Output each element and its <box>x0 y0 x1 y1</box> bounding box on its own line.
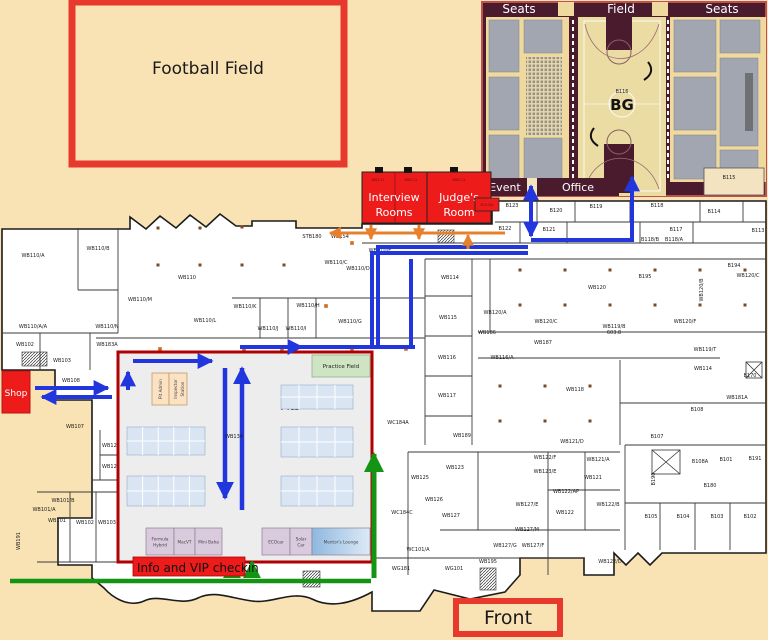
column-dot <box>589 420 592 423</box>
room-label-wb134: WB134 <box>225 434 243 440</box>
room-label: WB122/AP <box>553 489 579 495</box>
front-entrance-zone: Front <box>456 601 560 634</box>
column-dot <box>499 420 502 423</box>
gym-area: B116 BG Seats Field Seats Event Office B… <box>482 2 766 196</box>
room-label: WB101/B <box>51 498 75 504</box>
seat-block-dark <box>745 73 753 131</box>
gym-header-field: Field <box>607 2 635 16</box>
team-zone: ECOcar <box>262 528 290 555</box>
judges-room-zone: WB113 Judge's Room <box>427 172 491 223</box>
room-label: B114 <box>708 209 721 215</box>
column-dot <box>241 264 244 267</box>
room-label: B117 <box>670 227 683 233</box>
gym-corner-room <box>704 168 764 195</box>
column-dot <box>519 304 522 307</box>
table-cluster <box>127 427 205 455</box>
room-label: 603.8 <box>607 330 621 336</box>
column-dot <box>241 226 244 229</box>
room-label: WB107 <box>66 424 84 430</box>
front-label: Front <box>484 607 532 629</box>
seat-block <box>720 20 760 53</box>
room-label: WB110/A <box>21 253 45 259</box>
team-zone: Mini Baha <box>195 528 222 555</box>
inspector-label-2: Station <box>180 381 185 396</box>
gym-logo: BG <box>610 96 634 114</box>
gym-header-seats-right: Seats <box>705 2 738 16</box>
room-label: WB195 <box>479 559 497 565</box>
pits-area: Practice Field Pit Admin Inspector Stati… <box>118 352 372 562</box>
table-cluster <box>281 385 353 409</box>
room-label: WG181 <box>392 566 410 572</box>
seat-block <box>524 138 562 179</box>
room-label: WB110/I <box>285 326 306 332</box>
gym-header-seats-left: Seats <box>502 2 535 16</box>
judges-room-number: WB113 <box>453 178 466 182</box>
table-cluster <box>281 427 353 457</box>
b123a-label: B123/A <box>481 203 495 207</box>
team-zone-label: MacVT <box>178 540 192 545</box>
room-label: B115 <box>723 175 736 181</box>
practice-field-label: Practice Field <box>323 364 359 370</box>
room-label: WB123 <box>446 465 464 471</box>
room-label: WB110/N <box>95 324 119 330</box>
room-label: B191 <box>749 456 762 462</box>
team-zone-label: Mini Baha <box>198 540 219 545</box>
room-label: WB110/B <box>86 246 110 252</box>
room-label: WB191 <box>16 532 22 550</box>
gym-aisle-gap <box>652 2 668 16</box>
team-zone-label: Car <box>297 543 304 548</box>
room-label: WB121/D <box>560 439 584 445</box>
column-dot <box>744 269 747 272</box>
room-label: WG101 <box>445 566 463 572</box>
room-label: WB183A <box>96 342 118 348</box>
event-label: Event <box>489 181 521 194</box>
room-label: B107 <box>651 434 664 440</box>
room-label: WB189 <box>453 433 471 439</box>
room-label: B123 <box>506 203 519 209</box>
room-label: WB126 <box>425 497 443 503</box>
room-label: WB110/K <box>234 304 258 310</box>
room-label: WB122 <box>556 510 574 516</box>
room-label: WB103 <box>98 520 116 526</box>
room-label: WC184A <box>387 420 409 426</box>
room-label: WB127/M <box>515 527 539 533</box>
room-label: WB127/G <box>493 543 517 549</box>
column-dot <box>654 304 657 307</box>
shop-zone: Shop <box>2 371 30 413</box>
table-cluster <box>127 476 205 506</box>
room-label: WB181A <box>726 395 748 401</box>
room-label: WB154 <box>331 234 349 240</box>
football-field-label: Football Field <box>152 59 264 79</box>
team-zone-label: Mentor's Lounge <box>324 540 359 545</box>
team-zone: MacVT <box>174 528 195 555</box>
room-label: B190 <box>651 473 657 486</box>
seat-block <box>489 20 519 72</box>
room-label: WB123/E <box>534 469 557 475</box>
column-dot <box>744 304 747 307</box>
room-label: WB110/D <box>346 266 370 272</box>
room-label: B120 <box>550 208 563 214</box>
room-label: B121 <box>543 227 556 233</box>
orange-marker-dot <box>324 304 328 308</box>
room-label: B180 <box>704 483 717 489</box>
room-label: B108 <box>691 407 704 413</box>
room-label: B195 <box>639 274 652 280</box>
column-dot <box>589 385 592 388</box>
seat-block <box>489 77 519 130</box>
room-label: B170 <box>744 373 757 379</box>
team-zone-label: Formula <box>152 536 169 541</box>
room-label: WB121 <box>584 475 602 481</box>
column-dot <box>699 304 702 307</box>
room-label: WC101/A <box>406 547 430 553</box>
team-zone: SolarCar <box>290 528 312 555</box>
team-zone: FormulaHybrid <box>146 528 174 555</box>
gym-room-number: B116 <box>616 89 629 95</box>
event-venue-floor-plan: WB110/AWB110/BWB110WB110/MWB110/LWB110/N… <box>0 0 768 640</box>
gym-seat-grid <box>526 57 562 135</box>
room-label: B102 <box>744 514 757 520</box>
seat-block <box>524 20 562 53</box>
room-label: WB110/J <box>257 326 278 332</box>
room-label: B105 <box>645 514 658 520</box>
room-label: B104 <box>677 514 690 520</box>
room-label: WB110/G <box>338 319 362 325</box>
judges-room-label-1: Judge's <box>438 191 479 204</box>
room-label: WB127 <box>442 513 460 519</box>
room-label: WB118 <box>566 387 584 393</box>
checkin-label: Info and VIP checkin <box>137 561 259 575</box>
room-label: WB120/B <box>699 278 705 302</box>
room-label: B119 <box>590 204 603 210</box>
team-zone-label: Solar <box>296 536 307 541</box>
room-label: WB101 <box>48 518 66 524</box>
room-label: WB110/H <box>296 303 320 309</box>
room-label: WB103 <box>53 358 71 364</box>
room-label: WB117 <box>438 393 456 399</box>
room-label: WB122/B <box>596 502 620 508</box>
interview-room-number-1: WB111 <box>372 178 385 182</box>
room-label: WB120/A <box>483 310 507 316</box>
b123a-zone: B123/A <box>475 198 499 211</box>
room-label: WB116 <box>438 355 456 361</box>
room-label: WB101/A <box>32 507 56 513</box>
room-label: B103 <box>711 514 724 520</box>
room-label: B122 <box>499 226 512 232</box>
room-label: B118/A <box>665 237 684 243</box>
room-label: B113 <box>752 228 765 234</box>
room-label: WB115 <box>439 315 457 321</box>
orange-marker-dot <box>158 347 162 351</box>
judges-room-label-2: Room <box>443 206 474 219</box>
court-key-top <box>606 17 632 50</box>
seat-block <box>489 135 519 179</box>
room-label: WB120/F <box>674 319 697 325</box>
interview-rooms-label-2: Rooms <box>375 206 412 219</box>
orange-marker-dot <box>350 241 354 245</box>
room-label: WB110/L <box>194 318 217 324</box>
column-dot <box>564 269 567 272</box>
room-label: WB122/D <box>598 559 622 565</box>
column-dot <box>157 227 160 230</box>
room-label: WB114 <box>694 366 712 372</box>
team-zone: Mentor's Lounge <box>312 528 370 555</box>
room-label: WC184C <box>391 510 413 516</box>
checkin-zone: Info and VIP checkin <box>133 557 259 576</box>
room-label: WB102 <box>76 520 94 526</box>
team-zone-label: Hybrid <box>153 543 167 548</box>
column-dot <box>283 264 286 267</box>
column-dot <box>499 385 502 388</box>
pit-admin-label: Pit Admin <box>158 379 163 399</box>
room-label: STB180 <box>302 234 321 240</box>
room-label: WB110/C <box>324 260 348 266</box>
room-label: WB110 <box>178 275 196 281</box>
column-dot <box>544 420 547 423</box>
room-label: WB127/E <box>516 502 539 508</box>
column-dot <box>544 385 547 388</box>
shop-label: Shop <box>5 389 28 399</box>
room-label: WB120/C <box>736 273 760 279</box>
room-label: B194 <box>728 263 741 269</box>
room-label: WB187 <box>534 340 552 346</box>
room-label: B108A <box>692 459 709 465</box>
gym-aisle-gap <box>558 2 574 16</box>
seat-block <box>674 77 716 130</box>
room-label: WB102 <box>16 342 34 348</box>
room-label: WB119/T <box>694 347 718 353</box>
column-dot <box>609 269 612 272</box>
room-label: WB116/A <box>490 355 514 361</box>
room-label: WB121/A <box>586 457 610 463</box>
inspector-label-1: Inspector <box>173 379 178 399</box>
column-dot <box>199 264 202 267</box>
room-label: WB186 <box>478 330 496 336</box>
interview-room-number-2: WB112 <box>405 178 418 182</box>
room-label: WB110/A/A <box>19 324 48 330</box>
room-label: WB122/F <box>534 455 557 461</box>
interview-rooms-label-1: Interview <box>368 191 419 204</box>
seat-block <box>674 20 716 72</box>
column-dot <box>564 304 567 307</box>
room-label: WB127/F <box>522 543 545 549</box>
room-label: WB120/C <box>534 319 558 325</box>
table-cluster <box>281 476 353 506</box>
room-label: WB114 <box>441 275 459 281</box>
office-label: Office <box>562 181 594 194</box>
team-zone-label: ECOcar <box>268 540 284 545</box>
column-dot <box>654 269 657 272</box>
room-label: WB125 <box>411 475 429 481</box>
room-label: B118 <box>651 203 664 209</box>
room-label: WB120 <box>588 285 606 291</box>
room-label: WB110/M <box>128 297 152 303</box>
room-label: WB108 <box>62 378 80 384</box>
column-dot <box>609 304 612 307</box>
column-dot <box>157 264 160 267</box>
room-label: B101 <box>720 457 733 463</box>
column-dot <box>699 269 702 272</box>
room-label: B118/B <box>641 237 660 243</box>
column-dot <box>199 227 202 230</box>
column-dot <box>519 269 522 272</box>
